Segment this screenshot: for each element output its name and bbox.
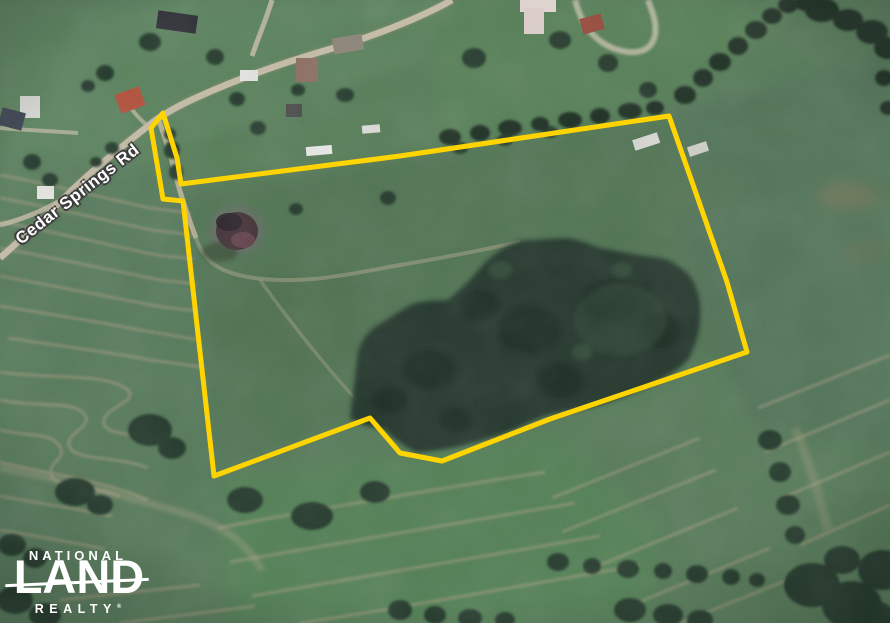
logo-trademark: ® [117, 604, 121, 610]
logo-word-land: LAND [9, 553, 149, 601]
logo-word-realty: REALTY® [8, 602, 148, 616]
aerial-imagery [0, 0, 890, 623]
satellite-map: Cedar Springs Rd NATIONAL LAND REALTY® [0, 0, 890, 623]
national-land-realty-logo: NATIONAL LAND REALTY® [8, 544, 148, 620]
vignette [0, 0, 890, 623]
